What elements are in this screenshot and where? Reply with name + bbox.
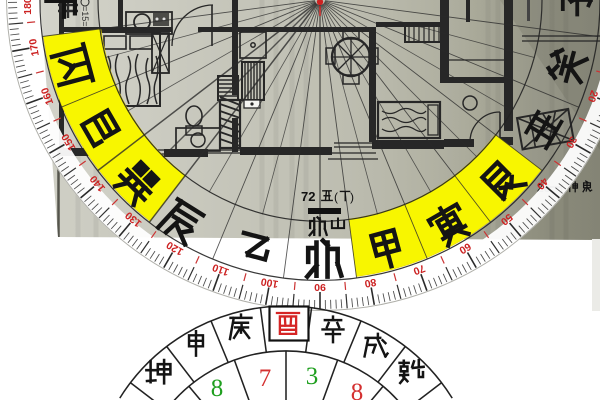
svg-text:7: 7 bbox=[259, 365, 272, 392]
svg-text:72: 72 bbox=[301, 189, 315, 204]
svg-text:): ) bbox=[350, 190, 354, 204]
svg-text:(: ( bbox=[334, 190, 338, 204]
svg-text:8: 8 bbox=[351, 379, 364, 400]
svg-text:90: 90 bbox=[314, 281, 326, 293]
svg-text:8: 8 bbox=[211, 375, 224, 400]
svg-text:180: 180 bbox=[22, 0, 34, 15]
svg-text:3: 3 bbox=[306, 363, 319, 390]
svg-text:80: 80 bbox=[363, 276, 377, 290]
